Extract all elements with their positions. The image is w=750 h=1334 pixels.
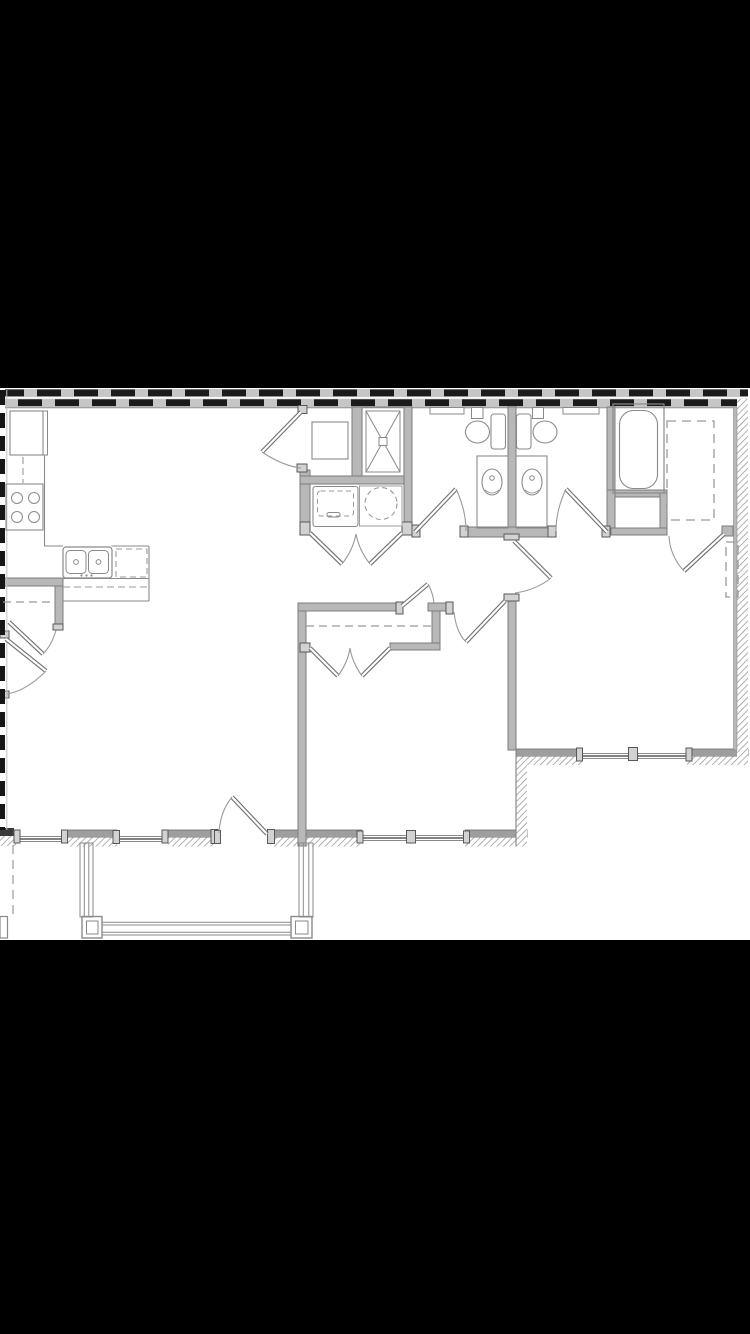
bedroom1-south-band-1 [516, 749, 582, 757]
laundry-jamb-left [300, 522, 310, 535]
south-wall-band-2 [168, 830, 215, 838]
top-exterior-wall [5, 389, 748, 408]
wall-cabinet-right [533, 408, 544, 419]
bedroom1-west-wall [508, 595, 516, 750]
window-cap-1 [14, 830, 20, 843]
faucet-dot-3 [90, 574, 92, 576]
step-wall-hatch-corner [516, 838, 527, 847]
closet-jamb-b [446, 602, 453, 614]
closet-bottom-wall [390, 643, 440, 650]
window-cap-4 [162, 830, 168, 843]
mirror-right [563, 408, 599, 415]
phone-screen [0, 0, 750, 1334]
closet-top-wall-a [298, 603, 397, 611]
pantry-jamb [53, 624, 63, 630]
window-bedroom1-cap-l [577, 748, 583, 761]
east-wall-inner-face [734, 407, 738, 750]
south-wall-hatch-4 [306, 838, 362, 847]
laundry-top-wall [300, 476, 412, 484]
south-wall-hatch-2 [168, 838, 215, 847]
pantry-east-wall [55, 586, 63, 626]
step-wall-hatch [516, 765, 527, 846]
bedroom2-west-wall [298, 603, 306, 846]
linen-bottom-wall [611, 528, 667, 535]
bedroom-wall-top-jamb [504, 594, 519, 601]
shower-drain [379, 438, 387, 446]
floor-plan-image [0, 388, 750, 940]
laundry-jamb-right [402, 522, 412, 535]
east-wall-hatch [737, 399, 748, 765]
top-wall-hatched [5, 389, 748, 408]
bedroom1-south-hatch-1 [516, 757, 582, 766]
window-bedroom2-mullion [407, 831, 416, 844]
bath-left-strike-jamb [460, 526, 468, 537]
bathroom-partition-wall [508, 407, 516, 540]
mirror-left [430, 408, 464, 415]
floor-plan-container [0, 388, 750, 940]
frontdoor-jamb-right [268, 830, 275, 844]
shower-east-wall [404, 407, 412, 535]
window-bedroom2-cap-l [357, 831, 363, 843]
window-bedroom1-mullion [629, 748, 638, 761]
wall-cabinet-left [472, 408, 484, 419]
bath-right-strike-jamb [548, 526, 556, 537]
window-cap-5 [215, 831, 221, 844]
faucet-dot-1 [80, 574, 82, 576]
hall-door-hinge-cap [504, 534, 519, 540]
closet-door-jamb-left [300, 643, 310, 652]
south-wall-hatch-1 [67, 838, 117, 847]
window-bedroom2-cap-r [464, 831, 470, 843]
window-cap-2 [62, 830, 68, 843]
window-cap-3 [113, 831, 120, 844]
south-wall-band-1 [67, 830, 117, 838]
south-wall-band-4 [306, 830, 362, 838]
pantry-top-wall [0, 578, 63, 586]
tub-west-wall [607, 407, 615, 493]
shower-west-wall [352, 407, 362, 476]
faucet-dot-2 [85, 574, 87, 576]
window-bedroom1-cap-r [686, 748, 692, 761]
